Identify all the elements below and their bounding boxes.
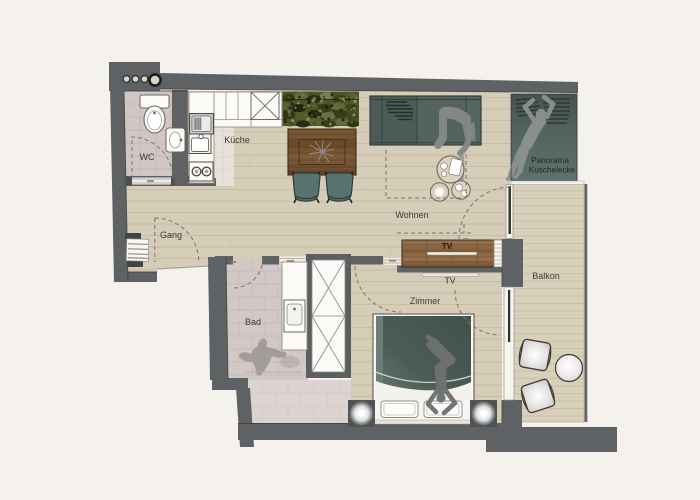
svg-text:Gang: Gang [160,230,182,240]
svg-text:Panorama: Panorama [531,156,569,165]
svg-text:Balkon: Balkon [532,271,560,281]
svg-text:TV: TV [442,242,453,251]
svg-text:Wohnen: Wohnen [395,210,428,220]
svg-text:Kuschelecke: Kuschelecke [529,166,576,175]
svg-text:Bad: Bad [245,317,261,327]
svg-text:Zimmer: Zimmer [410,296,441,306]
svg-text:WC: WC [140,152,155,162]
svg-text:TV: TV [445,276,456,286]
svg-text:Küche: Küche [224,135,250,145]
